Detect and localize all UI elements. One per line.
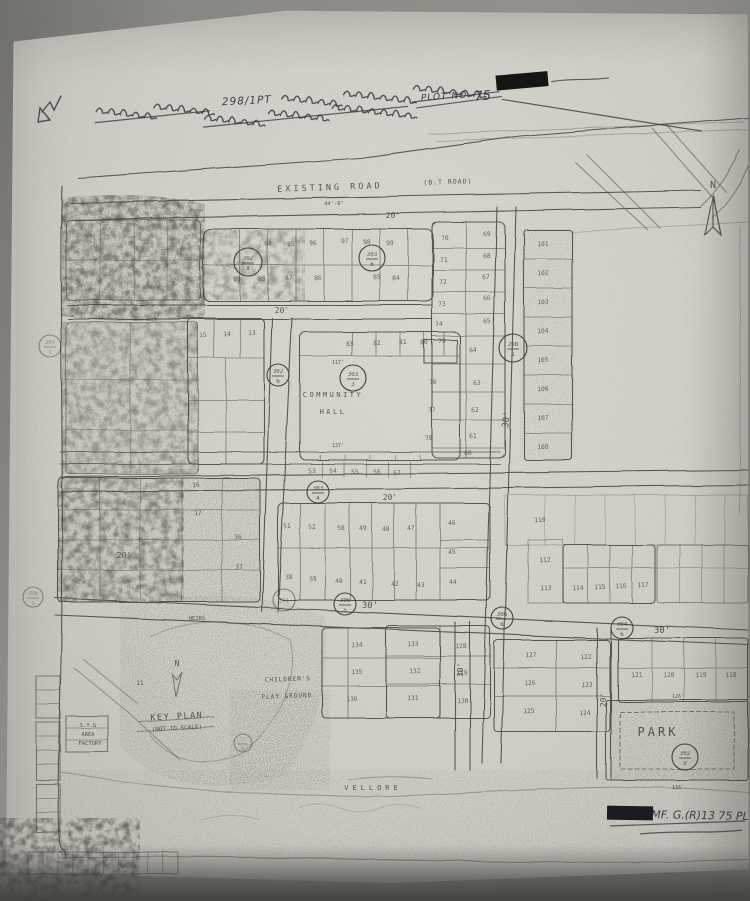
svg-text:7: 7: [241, 737, 245, 743]
map-label-road-width-20-top: 20': [386, 211, 400, 220]
plot-number-15: 15: [199, 332, 207, 339]
plot-number-113: 113: [540, 585, 552, 593]
plot-number-87: 87: [285, 275, 293, 282]
plot-number-114: 114: [572, 585, 584, 593]
plot-number-42: 42: [391, 581, 399, 588]
plot-number-89: 89: [233, 276, 241, 283]
plot-number-99: 99: [386, 240, 394, 247]
plot-number-97: 97: [341, 238, 349, 245]
map-label-factory-line3: FACTORY: [78, 741, 102, 747]
plot-number-106: 106: [537, 386, 549, 394]
svg-text:303: 303: [367, 252, 378, 258]
plot-number-102: 102: [537, 270, 549, 278]
map-label-park-label: PARK: [638, 725, 679, 739]
plot-number-67: 67: [482, 274, 490, 281]
svg-text:302: 302: [243, 256, 253, 262]
plot-number-51: 51: [283, 523, 291, 530]
plot-number-16: 16: [192, 482, 200, 489]
plot-number-115: 115: [594, 584, 606, 592]
plot-number-132: 132: [409, 668, 421, 676]
layout-plan-map: EXISTING ROAD(B.T ROAD)44'-6"20'20'20'20…: [0, 0, 750, 901]
plot-number-120: 120: [663, 672, 675, 680]
svg-text:9: 9: [683, 761, 687, 767]
plot-number-46: 46: [448, 520, 456, 527]
map-label-annotation-plot-number: 75: [474, 88, 492, 104]
plot-number-56: 56: [373, 469, 381, 476]
plot-number-104: 104: [537, 328, 549, 336]
plot-number-55: 55: [351, 469, 359, 476]
plot-number-117: 117: [637, 582, 649, 590]
map-label-dim-117: 117': [332, 360, 344, 366]
map-label-road-width-20-mid: 20': [383, 493, 397, 502]
plot-number-65: 65: [483, 318, 491, 325]
map-label-existing-road-type: (B.T ROAD): [423, 177, 472, 187]
svg-text:302: 302: [273, 369, 283, 375]
plot-number-112: 112: [539, 557, 551, 565]
map-label-community-hall-line2: HALL: [320, 408, 347, 416]
svg-text:306: 306: [28, 591, 39, 597]
plot-number-129: 129: [456, 670, 468, 678]
plot-number-122: 122: [580, 654, 592, 662]
plot-number-96: 96: [309, 240, 317, 247]
map-label-north-letter-main: N: [710, 180, 716, 191]
plot-number-45: 45: [448, 549, 456, 556]
plot-number-86: 86: [314, 275, 322, 282]
plot-number-83: 83: [346, 341, 354, 348]
plot-number-38: 38: [285, 574, 293, 581]
map-label-factory-line2: AREA: [81, 732, 95, 738]
plot-number-49: 49: [359, 525, 367, 532]
svg-text:303: 303: [313, 486, 324, 492]
plot-number-36: 36: [234, 534, 242, 541]
svg-text:6: 6: [276, 379, 280, 385]
plot-number-118: 118: [725, 672, 737, 680]
plot-number-39: 39: [309, 576, 317, 583]
plot-number-77: 77: [428, 407, 436, 414]
plot-number-68: 68: [483, 253, 491, 260]
plot-number-108: 108: [537, 444, 549, 452]
plot-number-69: 69: [483, 231, 491, 238]
plot-number-62: 62: [471, 407, 479, 414]
plot-number-61: 61: [469, 433, 477, 440]
svg-text:B: B: [241, 747, 245, 753]
plot-number-48: 48: [382, 526, 390, 533]
plot-number-127: 127: [525, 652, 537, 660]
plot-number-101: 101: [537, 241, 549, 249]
svg-text:302: 302: [680, 751, 690, 757]
plot-number-74: 74: [435, 321, 443, 328]
plot-number-63: 63: [473, 380, 481, 387]
svg-text:6: 6: [500, 622, 504, 628]
svg-text:6: 6: [620, 632, 624, 638]
plot-number-40: 40: [335, 578, 343, 585]
plot-number-47: 47: [407, 525, 415, 532]
plot-number-126: 126: [524, 680, 536, 688]
svg-text:305: 305: [45, 340, 56, 346]
plot-number-72: 72: [439, 279, 447, 286]
map-label-heirs-note: HEIRS: [189, 616, 206, 623]
plot-number-103: 103: [537, 299, 549, 307]
plot-number-64: 64: [469, 347, 477, 354]
plot-number-76: 76: [429, 379, 437, 386]
plot-number-54: 54: [329, 468, 337, 475]
svg-text:8: 8: [246, 266, 250, 272]
photocopy-smudges: [0, 12, 750, 901]
svg-text:304: 304: [617, 622, 628, 628]
plot-number-44: 44: [449, 579, 457, 586]
svg-text:1: 1: [31, 601, 35, 607]
plot-number-80: 80: [420, 339, 428, 346]
plot-number-41: 41: [359, 579, 367, 586]
plot-number-105: 105: [537, 357, 549, 365]
plot-number-70: 70: [441, 235, 449, 242]
plot-number-135: 135: [351, 669, 363, 677]
plot-number-57: 57: [393, 470, 401, 477]
map-label-factory-line1: S.Y.G: [80, 723, 97, 729]
svg-text:306: 306: [340, 598, 351, 604]
plot-number-119: 119: [695, 672, 707, 680]
redaction-mark-footer: [607, 806, 653, 821]
plot-number-66: 66: [483, 295, 491, 302]
map-label-road-width-30-c: 30': [654, 626, 670, 636]
svg-text:4: 4: [316, 496, 320, 502]
svg-text:301: 301: [279, 599, 290, 605]
plot-number-17: 17: [194, 510, 202, 517]
plot-number-94: 94: [264, 241, 272, 248]
map-label-existing-road-dim: 44'-6": [324, 201, 344, 207]
plot-number-121: 121: [631, 672, 643, 680]
plot-number-123: 123: [581, 682, 593, 690]
plot-number-131: 131: [407, 695, 419, 703]
plot-number-88: 88: [258, 276, 266, 283]
svg-text:6: 6: [370, 262, 374, 268]
plot-number-71: 71: [440, 257, 448, 264]
plot-number-130: 130: [457, 698, 469, 706]
map-label-vellore-label: VELLORE: [344, 784, 402, 792]
plot-number-79: 79: [438, 338, 446, 345]
svg-text:1: 1: [48, 350, 52, 356]
plot-number-107: 107: [537, 415, 549, 423]
svg-text:306: 306: [497, 612, 508, 618]
svg-text:303: 303: [348, 372, 359, 378]
map-label-key-plan-number: 11: [136, 680, 144, 687]
plot-number-50: 50: [337, 525, 345, 532]
plot-number-52: 52: [308, 524, 316, 531]
plot-number-78: 78: [425, 435, 433, 442]
map-label-dim-126: 126': [672, 694, 684, 700]
map-label-community-hall-line1: COMMUNITY: [303, 391, 363, 399]
plot-number-128: 128: [455, 643, 467, 651]
plot-number-43: 43: [417, 582, 425, 589]
plot-number-125: 125: [523, 708, 535, 716]
svg-text:298: 298: [508, 342, 519, 348]
map-label-north-letter-key: N: [175, 659, 180, 668]
plot-number-84: 84: [392, 275, 400, 282]
plot-number-95: 95: [287, 241, 295, 248]
plot-number-81: 81: [399, 339, 407, 346]
map-label-road-width-30-main: 30': [501, 411, 513, 428]
plot-number-124: 124: [579, 710, 591, 718]
plot-number-60: 60: [464, 450, 472, 457]
map-label-road-width-20-d: 20': [599, 693, 608, 708]
map-label-footer-reference: MF. G.(R)13 75 PL: [651, 808, 749, 823]
plot-number-73: 73: [438, 301, 446, 308]
svg-text:5: 5: [343, 608, 347, 614]
plot-number-53: 53: [308, 468, 316, 475]
plot-number-133: 133: [407, 641, 419, 649]
plot-number-85: 85: [373, 274, 381, 281]
photographed-document: EXISTING ROAD(B.T ROAD)44'-6"20'20'20'20…: [0, 0, 750, 901]
plot-number-136: 136: [346, 696, 358, 704]
map-label-dim-137: 137': [332, 443, 344, 449]
plot-number-13: 13: [248, 330, 256, 337]
plot-number-14: 14: [223, 331, 231, 338]
map-label-road-width-30-b: 30': [362, 601, 378, 611]
map-label-road-width-20-a: 20': [275, 306, 289, 315]
map-label-dim-116: 116': [672, 785, 684, 791]
plot-number-110: 110: [534, 517, 546, 525]
map-label-road-width-20-left: 20': [117, 551, 131, 560]
plot-number-116: 116: [615, 583, 627, 591]
plot-number-134: 134: [351, 642, 363, 650]
svg-text:1: 1: [511, 352, 515, 358]
plot-number-37: 37: [235, 564, 243, 571]
plot-number-82: 82: [373, 340, 381, 347]
svg-text:3: 3: [351, 382, 355, 388]
